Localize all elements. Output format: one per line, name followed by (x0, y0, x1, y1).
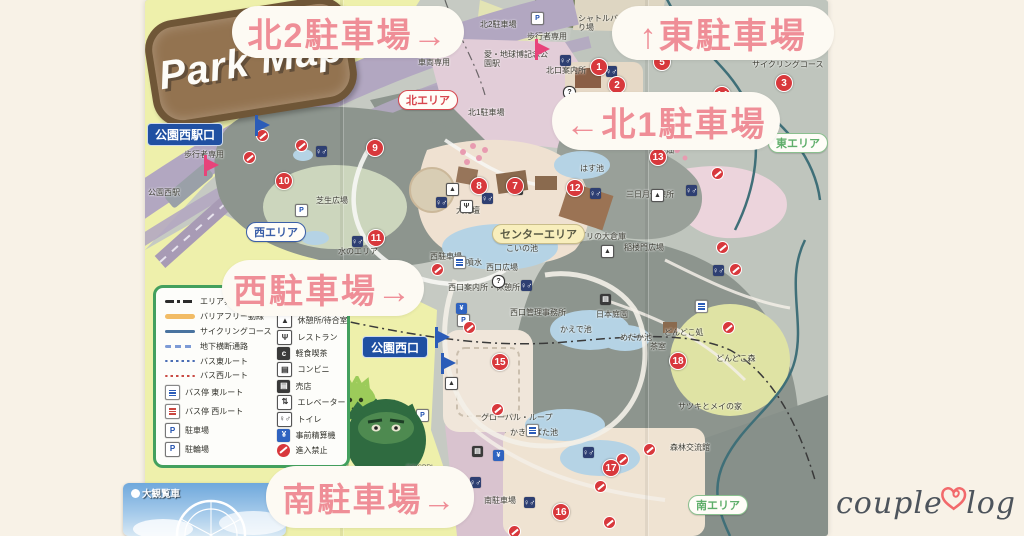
legend-item: 進入禁止 (277, 444, 347, 457)
legend-item-label: 駐車場 (185, 425, 209, 436)
shop-icon: ▤ (600, 294, 611, 305)
ferris-wheel-photo: 大観覧車 (123, 483, 286, 536)
watermark-text-couple: couple (836, 486, 943, 521)
legend-item-label: レストラン (297, 332, 337, 343)
legend-item-label: 事前精算機 (295, 430, 335, 441)
legend-item: Ψレストラン (277, 330, 347, 345)
no-entry-marker (722, 321, 735, 334)
area-label: センターエリア (492, 224, 585, 244)
place-label: 歩行者専用 (527, 32, 567, 41)
legend-item-label: 売店 (295, 381, 311, 392)
parking-annotation-pill: 北2駐車場→ (232, 6, 464, 58)
toilet-icon: ♀♂ (583, 447, 594, 458)
place-label: めだか池 (620, 333, 652, 342)
pink-flag-icon (205, 158, 219, 172)
place-label: 日本庭園 (596, 310, 628, 319)
blue-flag-icon (436, 330, 450, 344)
toilet-icon: ♀♂ (713, 265, 724, 276)
bus-east-route-line (165, 360, 195, 363)
place-label: 北2駐車場 (480, 20, 516, 29)
legend-item-label: 地下横断通路 (200, 341, 248, 352)
place-label: 噴水 (466, 258, 482, 267)
legend-item-label: エレベーター (297, 397, 345, 408)
numbered-marker: 9 (366, 139, 384, 157)
place-label: 公園西駅 (148, 188, 180, 197)
legend-item: P駐車場 (165, 423, 271, 438)
bus-west-route-line (165, 375, 195, 378)
parking-annotation-pill: ←北1駐車場 (552, 92, 780, 150)
place-label: 北1駐車場 (468, 108, 504, 117)
bicycle-parking-icon: P (165, 442, 180, 457)
busstop-blue-icon (526, 424, 539, 437)
parking-annotation-text: 西駐車場→ (233, 264, 413, 313)
numbered-marker: 8 (470, 177, 488, 195)
busstop-blue-icon (453, 256, 466, 269)
rest-icon: ▲ (601, 245, 614, 258)
legend-item: ⇅エレベーター (277, 395, 347, 410)
couple-blog-watermark: couple log (836, 472, 1016, 534)
bus-stop-west-icon (165, 404, 180, 419)
legend-item: ▤売店 (277, 380, 347, 393)
legend-item: ♀♂トイレ (277, 412, 347, 427)
parking-annotation-text: 南駐車場→ (283, 473, 458, 521)
place-label: 南駐車場 (484, 496, 516, 505)
toilet-icon: ♀♂ (560, 55, 571, 66)
info-icon: ? (492, 275, 505, 288)
area-boundary-line (165, 300, 195, 303)
parking-annotation-text: ↑東駐車場 (639, 8, 807, 59)
numbered-marker: 13 (649, 148, 667, 166)
no-entry-marker (603, 516, 616, 529)
photo-caption: 大観覧車 (131, 486, 180, 500)
legend-item: バス停 西ルート (165, 404, 271, 419)
numbered-marker: 16 (552, 503, 570, 521)
place-label: 車両専用 (418, 58, 450, 67)
no-entry-marker (508, 525, 521, 536)
barrier-free-route-line (165, 314, 195, 320)
photo-caption-text: 大観覧車 (142, 486, 180, 500)
photo-number-disc (131, 489, 140, 498)
fare-icon: ¥ (456, 303, 467, 314)
area-label: 南エリア (688, 495, 748, 515)
legend-item: ▤コンビニ (277, 362, 347, 377)
legend-item-label: 軽食喫茶 (295, 348, 327, 359)
place-label: 芝生広場 (316, 196, 348, 205)
area-label: 東エリア (768, 133, 828, 153)
toilet-icon: ♀♂ (277, 412, 292, 427)
legend-item: バス東ルート (165, 356, 271, 367)
numbered-marker: 15 (491, 353, 509, 371)
place-label: 西口案内所・休憩所 (448, 283, 520, 292)
shop-icon: ▤ (277, 380, 290, 393)
parking-annotation-pill: ↑東駐車場 (612, 6, 834, 60)
shop-icon: ▤ (472, 446, 483, 457)
numbered-marker: 3 (775, 74, 793, 92)
place-label: 北口案内所 (546, 66, 586, 75)
place-label: どんどこ処 (664, 328, 704, 337)
numbered-marker: 10 (275, 172, 293, 190)
entrance-label: 公園西駅口 (147, 123, 223, 146)
restaurant-icon: Ψ (277, 330, 292, 345)
toilet-icon: ♀♂ (436, 197, 447, 208)
no-entry-marker (729, 263, 742, 276)
no-entry-marker (295, 139, 308, 152)
legend-item-label: バス東ルート (200, 356, 248, 367)
place-label: 三日月休憩所 (626, 190, 674, 199)
rest-icon: ▲ (446, 183, 459, 196)
legend-left-column: エリア界バリアフリー動線サイクリングコース地下横断通路バス東ルートバス西ルートバ… (165, 296, 271, 457)
parking-annotation-text: ←北1駐車場 (566, 97, 767, 146)
place-label: 西口広場 (486, 263, 518, 272)
legend-item: バス西ルート (165, 370, 271, 381)
no-entry-marker (243, 151, 256, 164)
toilet-icon: ♀♂ (521, 280, 532, 291)
no-entry-marker (594, 480, 607, 493)
parking-annotation-text: 北2駐車場→ (248, 8, 449, 57)
toilet-icon: ♀♂ (686, 185, 697, 196)
underground-passage-line (165, 345, 195, 348)
numbered-marker: 1 (590, 58, 608, 76)
parking-annotation-pill: 西駐車場→ (222, 260, 424, 316)
legend-item: ¥事前精算機 (277, 429, 347, 442)
legend-item-label: バス西ルート (200, 370, 248, 381)
no-entry-marker (463, 321, 476, 334)
no-entry-marker (491, 403, 504, 416)
pink-flag-icon (536, 42, 550, 56)
place-label: 西口管理事務所 (510, 308, 566, 317)
legend-item: サイクリングコース (165, 326, 271, 337)
legend-item-label: 進入禁止 (295, 445, 327, 456)
legend-item-label: コンビニ (297, 364, 329, 375)
numbered-marker: 18 (669, 352, 687, 370)
fare-machine-icon: ¥ (277, 429, 290, 442)
parking-icon: P (531, 12, 544, 25)
no-entry-icon (277, 444, 290, 457)
no-entry-marker (711, 167, 724, 180)
parking-icon: P (165, 423, 180, 438)
no-entry-marker (643, 443, 656, 456)
no-entry-marker (716, 241, 729, 254)
rest-icon: ▲ (651, 189, 664, 202)
place-label: はす池 (580, 164, 604, 173)
elevator-icon: ⇅ (277, 395, 292, 410)
convenience-store-icon: ▤ (277, 362, 292, 377)
area-label: 西エリア (246, 222, 306, 242)
toilet-icon: ♀♂ (316, 146, 327, 157)
legend-item: c軽食喫茶 (277, 347, 347, 360)
no-entry-marker (431, 263, 444, 276)
place-label: サツキとメイの家 (678, 402, 742, 411)
parking-annotation-pill: 南駐車場→ (266, 466, 474, 528)
place-label: こいの池 (506, 244, 538, 253)
cafe-icon: c (277, 347, 290, 360)
numbered-marker: 11 (367, 229, 385, 247)
place-label: かえで池 (560, 325, 592, 334)
numbered-marker: 17 (602, 459, 620, 477)
place-label: 稲楼門広場 (624, 243, 664, 252)
rest-icon: ▲ (445, 377, 458, 390)
blog-image-park-map: Park Map エリア界バリアフリー動線サイクリングコース地下横断通路バス東ル… (0, 0, 1024, 536)
cycling-course-line (165, 330, 195, 333)
place-label: サイクリングコース (752, 60, 823, 69)
legend-item-label: 休憩所/待合室 (297, 315, 347, 326)
numbered-marker: 12 (566, 179, 584, 197)
numbered-marker: 7 (506, 177, 524, 195)
toilet-icon: ♀♂ (482, 193, 493, 204)
restaurant-icon: Ψ (460, 200, 473, 213)
legend-item: P駐輪場 (165, 442, 271, 457)
parking-icon: P (295, 204, 308, 217)
toilet-icon: ♀♂ (590, 188, 601, 199)
legend-right-column: ?案内所▲休憩所/待合室Ψレストランc軽食喫茶▤コンビニ▤売店⇅エレベーター♀♂… (277, 296, 347, 457)
legend-item-label: サイクリングコース (200, 326, 271, 337)
place-label: 森林交流館 (670, 443, 710, 452)
fare-icon: ¥ (493, 450, 504, 461)
entrance-label: 公園西口 (362, 336, 428, 358)
toilet-icon: ♀♂ (524, 497, 535, 508)
legend-item: バス停 東ルート (165, 385, 271, 400)
area-label: 北エリア (398, 90, 458, 110)
place-label: 茶室 (650, 342, 666, 351)
place-label: グローバル・ループ (481, 413, 552, 422)
legend-item-label: トイレ (297, 414, 321, 425)
legend-item-label: バス停 東ルート (185, 387, 243, 398)
legend-item: 地下横断通路 (165, 341, 271, 352)
blue-flag-icon (256, 118, 270, 132)
watermark-text-log: log (966, 486, 1016, 521)
bus-stop-east-icon (165, 385, 180, 400)
place-label: どんどこ森 (716, 354, 756, 363)
place-label: 水のエリア (338, 247, 378, 256)
busstop-blue-icon (695, 300, 708, 313)
toilet-icon: ♀♂ (352, 236, 363, 247)
heart-icon (939, 472, 968, 524)
legend-item-label: 駐輪場 (185, 444, 209, 455)
legend-item-label: バス停 西ルート (185, 406, 243, 417)
blue-flag-icon (442, 356, 456, 370)
